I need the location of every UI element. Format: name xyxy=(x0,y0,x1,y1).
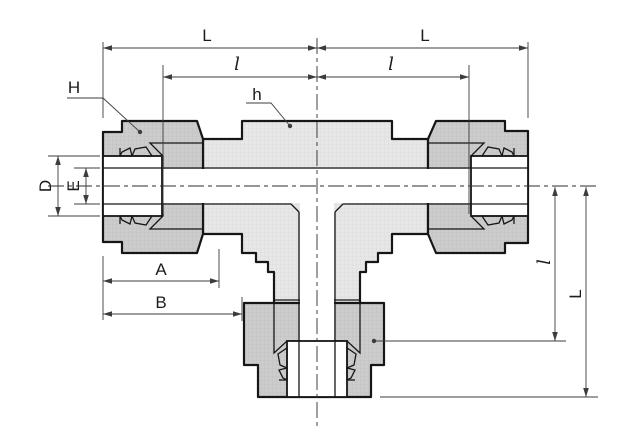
dim-label-L-top-right: L xyxy=(420,26,429,45)
dim-label-H: H xyxy=(68,78,80,97)
dim-label-l-top-right: l xyxy=(388,54,394,75)
engineering-drawing-page: L L l l H h D E A B l L xyxy=(0,0,625,438)
dim-label-A: A xyxy=(155,260,167,279)
dim-label-l-right: l xyxy=(534,259,555,265)
dim-label-B: B xyxy=(155,293,166,312)
tee-fitting-section xyxy=(103,121,528,397)
leader-dot-l-ext xyxy=(372,339,376,343)
dim-label-L-top-left: L xyxy=(202,26,211,45)
dim-label-E: E xyxy=(64,180,83,191)
dim-label-l-top-left: l xyxy=(234,54,240,75)
dim-label-D: D xyxy=(36,180,55,192)
dim-label-h: h xyxy=(252,85,261,104)
fitting-drawing: L L l l H h D E A B l L xyxy=(0,0,625,438)
dim-label-L-right: L xyxy=(566,289,585,298)
